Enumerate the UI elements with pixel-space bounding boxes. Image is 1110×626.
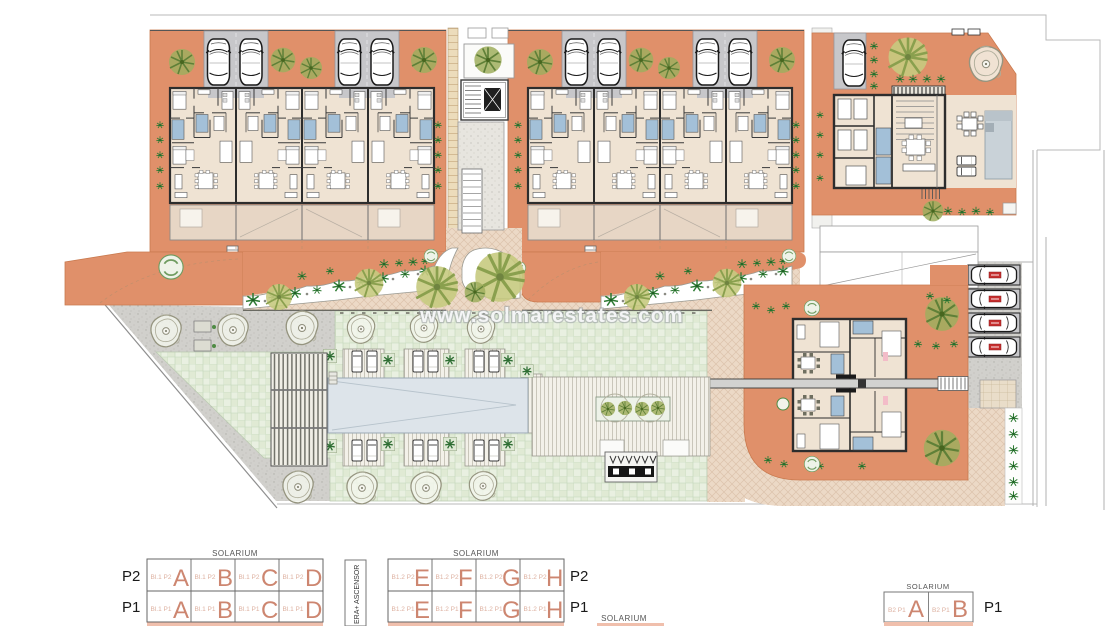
svg-text:F: F: [458, 565, 473, 592]
svg-text:H: H: [546, 597, 563, 624]
svg-text:Bl.1 P2: Bl.1 P2: [239, 574, 260, 581]
svg-text:B1.2 P1: B1.2 P1: [436, 606, 460, 613]
svg-text:P2: P2: [570, 568, 588, 585]
svg-text:B1.2 P1: B1.2 P1: [480, 606, 504, 613]
svg-text:SOLARIUM: SOLARIUM: [212, 549, 258, 558]
svg-text:B1.2 P2: B1.2 P2: [436, 574, 460, 581]
svg-text:B: B: [217, 565, 233, 592]
svg-text:SOLARIUM: SOLARIUM: [453, 549, 499, 558]
svg-text:Bl.1 P2: Bl.1 P2: [151, 574, 172, 581]
svg-text:B2 P1: B2 P1: [888, 607, 906, 614]
svg-text:C: C: [261, 565, 278, 592]
svg-text:D: D: [305, 565, 322, 592]
svg-text:A: A: [908, 596, 924, 623]
svg-text:P1: P1: [570, 599, 588, 616]
svg-text:B1.2 P1: B1.2 P1: [392, 606, 416, 613]
svg-text:H: H: [546, 565, 563, 592]
svg-text:P1: P1: [122, 599, 140, 616]
svg-text:Bl.1 P1: Bl.1 P1: [239, 606, 260, 613]
svg-text:B2 P1: B2 P1: [932, 607, 950, 614]
svg-text:B1.2 P1: B1.2 P1: [524, 606, 548, 613]
svg-text:D: D: [305, 597, 322, 624]
svg-text:P2: P2: [122, 568, 140, 585]
svg-text:A: A: [173, 597, 189, 624]
svg-text:B1.2 P2: B1.2 P2: [480, 574, 504, 581]
svg-text:G: G: [502, 597, 521, 624]
svg-text:E: E: [414, 597, 430, 624]
svg-text:www.solmarestates.com: www.solmarestates.com: [419, 304, 684, 327]
svg-text:P1: P1: [984, 599, 1002, 616]
svg-text:B: B: [952, 596, 968, 623]
svg-text:G: G: [502, 565, 521, 592]
svg-text:B: B: [217, 597, 233, 624]
svg-text:A: A: [173, 565, 189, 592]
svg-text:Bl.1 P2: Bl.1 P2: [195, 574, 216, 581]
svg-text:ERA+ ASCENSOR: ERA+ ASCENSOR: [354, 565, 361, 624]
svg-text:E: E: [414, 565, 430, 592]
svg-text:Bl.1 P1: Bl.1 P1: [195, 606, 216, 613]
svg-text:B1.2 P2: B1.2 P2: [524, 574, 548, 581]
svg-text:Bl.1 P1: Bl.1 P1: [283, 606, 304, 613]
svg-text:SOLARIUM: SOLARIUM: [601, 614, 647, 623]
svg-text:C: C: [261, 597, 278, 624]
svg-text:Bl.1 P1: Bl.1 P1: [151, 606, 172, 613]
svg-text:Bl.1 P2: Bl.1 P2: [283, 574, 304, 581]
svg-text:B1.2 P2: B1.2 P2: [392, 574, 416, 581]
svg-text:F: F: [458, 597, 473, 624]
svg-text:SOLARIUM: SOLARIUM: [906, 582, 949, 591]
